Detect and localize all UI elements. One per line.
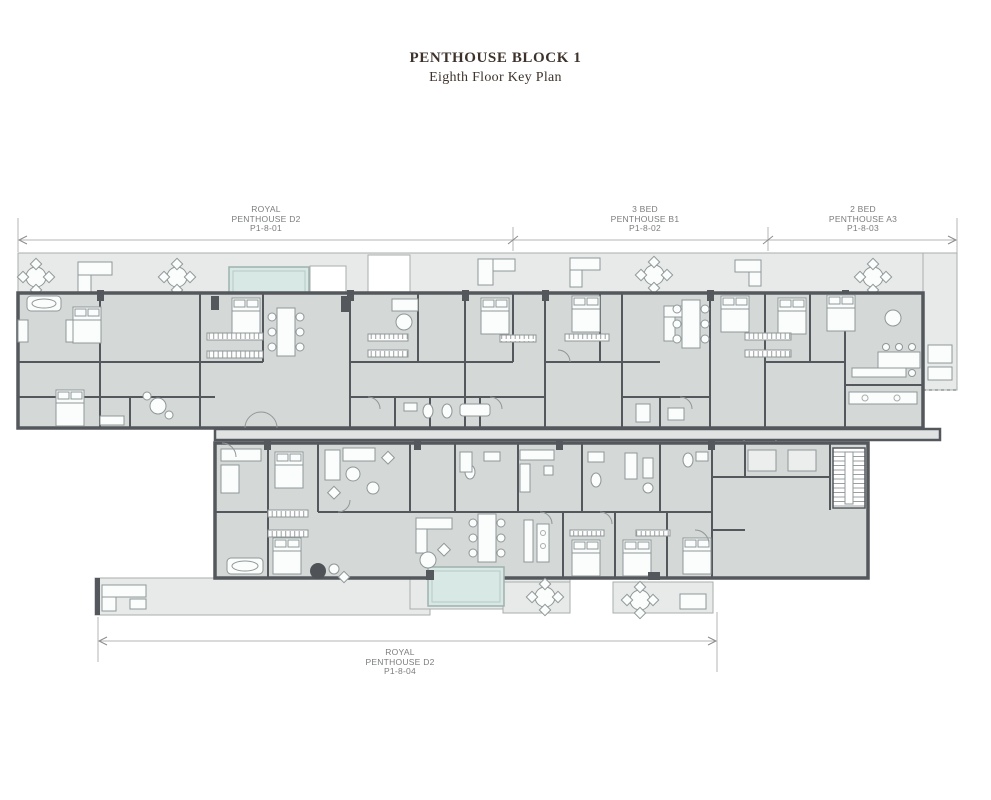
bed: [572, 296, 600, 332]
bed: [683, 538, 711, 574]
closet: [500, 335, 536, 342]
closet: [268, 510, 308, 517]
bed: [73, 307, 101, 343]
closet: [570, 530, 604, 536]
toilet: [442, 404, 452, 418]
kitchen-island: [524, 520, 549, 562]
bathtub: [27, 296, 61, 311]
bathtub: [460, 404, 490, 416]
bed: [623, 540, 651, 576]
closet: [745, 350, 791, 357]
pool-lower: [428, 567, 504, 606]
stairs: [833, 448, 865, 508]
dining-table: [469, 514, 505, 562]
toilet: [683, 453, 693, 467]
bed: [721, 296, 749, 332]
floor-plan-drawing: [0, 0, 991, 800]
closet: [565, 334, 609, 341]
closet: [368, 350, 408, 357]
dining-table: [673, 300, 709, 348]
bed: [273, 538, 301, 574]
bed: [56, 390, 84, 426]
toilet: [423, 404, 433, 418]
terrace-cabinet: [680, 594, 706, 609]
toilet: [591, 473, 601, 487]
bed: [827, 295, 855, 331]
bathtub: [227, 558, 263, 574]
upper-wing: [17, 253, 957, 428]
bed: [275, 452, 303, 488]
closet: [207, 351, 263, 358]
closet: [368, 334, 408, 341]
closet: [268, 530, 308, 537]
sofa: [788, 450, 816, 471]
dining-table: [268, 308, 304, 356]
bed: [232, 298, 260, 334]
bed: [778, 298, 806, 334]
bed: [481, 298, 509, 334]
closet: [745, 333, 791, 340]
bed: [572, 540, 600, 576]
closet: [207, 333, 263, 340]
round-table-dark: [310, 563, 326, 579]
lower-wing: [95, 441, 868, 619]
corridor: [215, 429, 940, 440]
closet: [636, 530, 670, 536]
sofa: [748, 450, 776, 471]
